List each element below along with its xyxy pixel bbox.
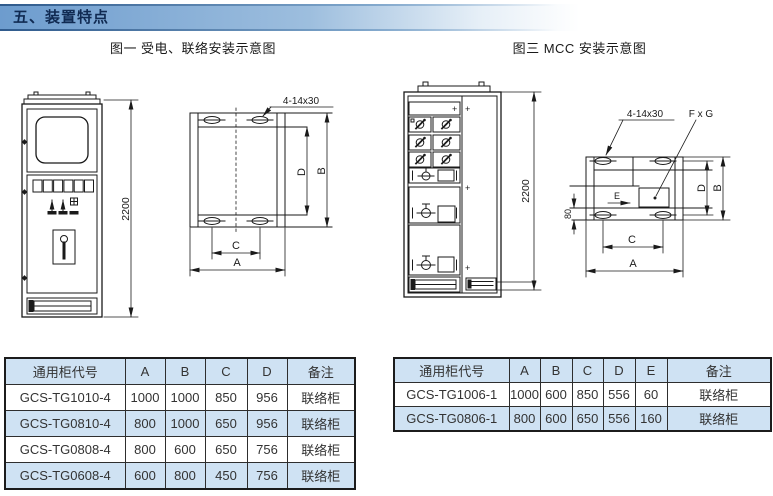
svg-text:80: 80 <box>563 209 573 219</box>
table-row: GCS-TG0806-1800600650556160联络柜 <box>394 407 771 432</box>
table-cell: 956 <box>247 385 287 411</box>
figure1-title: 图一 受电、联络安装示意图 <box>0 38 386 57</box>
table-cell: 650 <box>572 407 603 432</box>
table-cell: GCS-TG0608-4 <box>5 463 125 490</box>
column-header: D <box>603 358 635 383</box>
table-cell: 联络柜 <box>287 437 355 463</box>
dimension-offset-80: 80 <box>563 194 574 234</box>
dimension-d: D <box>683 161 713 215</box>
table-cell: GCS-TG0810-4 <box>5 411 125 437</box>
dimension-a: A <box>586 221 683 277</box>
figure3-diagram: + + + + 2200 <box>386 60 773 360</box>
cabinet-body <box>22 104 102 317</box>
table-cell: 联络柜 <box>287 411 355 437</box>
svg-text:A: A <box>233 257 241 269</box>
table-cell: 800 <box>125 437 165 463</box>
svg-text:B: B <box>712 184 724 191</box>
table-row: GCS-TG0808-4800600650756联络柜 <box>5 437 355 463</box>
table-cell: 1000 <box>125 385 165 411</box>
table-cell: 556 <box>603 383 635 407</box>
top-plate <box>418 86 490 92</box>
table-row: GCS-TG1006-1100060085055660联络柜 <box>394 383 771 407</box>
catalog-page: 五、装置特点 图一 受电、联络安装示意图 图三 MCC 安装示意图 <box>0 0 773 496</box>
table-cell: 450 <box>205 463 247 490</box>
switch-drawer <box>409 168 460 183</box>
header-row: 通用柜代号ABCD备注 <box>5 358 355 385</box>
table-cell: 联络柜 <box>287 463 355 490</box>
svg-text:A: A <box>629 258 637 270</box>
svg-text:E: E <box>614 191 620 201</box>
column-header: C <box>572 358 603 383</box>
figure3-title: 图三 MCC 安装示意图 <box>386 38 773 57</box>
figure1-diagram: 2200 <box>0 60 386 360</box>
table-row: GCS-TG0810-48001000650956联络柜 <box>5 411 355 437</box>
mounting-plan-view: 4-14x30 D B C A <box>190 96 333 276</box>
table-cell: 1000 <box>509 383 540 407</box>
table-cell: 160 <box>635 407 667 432</box>
table-cell: 1000 <box>165 385 205 411</box>
table-cell: 联络柜 <box>667 383 771 407</box>
opening-size-label: F x G <box>689 109 714 120</box>
svg-text:C: C <box>628 234 636 246</box>
table-cell: 850 <box>205 385 247 411</box>
table-cell: GCS-TG1006-1 <box>394 383 509 407</box>
table-cell: 800 <box>509 407 540 432</box>
column-header: 备注 <box>287 358 355 385</box>
table-cell: 800 <box>165 463 205 490</box>
table-cell: 600 <box>540 407 572 432</box>
cabinet-front-view <box>22 92 102 317</box>
ventilation-grille <box>27 298 97 314</box>
svg-text:D: D <box>696 184 708 192</box>
control-switch-icon <box>48 198 79 215</box>
svg-text:B: B <box>316 167 328 174</box>
table-row: GCS-TG0608-4600800450756联络柜 <box>5 463 355 490</box>
table-cell: 600 <box>125 463 165 490</box>
fig1-spec-table: 通用柜代号ABCD备注GCS-TG1010-410001000850956联络柜… <box>4 357 356 490</box>
plus-marks: + + + + <box>452 104 470 273</box>
column-header: 通用柜代号 <box>394 358 509 383</box>
table-cell: GCS-TG0808-4 <box>5 437 125 463</box>
table-cell: GCS-TG0806-1 <box>394 407 509 432</box>
table-cell: 650 <box>205 411 247 437</box>
drawer-unit-grid <box>409 117 460 167</box>
table-cell: 756 <box>247 437 287 463</box>
large-drawer <box>409 225 460 275</box>
table-cell: 800 <box>125 411 165 437</box>
cap-bolt <box>423 82 428 86</box>
dimension-height: 2200 <box>498 92 541 290</box>
height-dim-label: 2200 <box>120 197 132 221</box>
cap-bolt <box>479 82 484 86</box>
column-header: B <box>165 358 205 385</box>
entry-dimension: E <box>608 191 630 203</box>
slot-size-label: 4-14x30 <box>283 96 320 107</box>
svg-text:+: + <box>465 104 470 114</box>
table-cell: 600 <box>540 383 572 407</box>
mounting-plan-view: E 80 4-14x30 F x G <box>563 109 730 277</box>
table-cell: 1000 <box>165 411 205 437</box>
column-header: A <box>509 358 540 383</box>
rotary-switch-icon <box>416 119 452 164</box>
table-cell: 600 <box>165 437 205 463</box>
large-drawer <box>409 187 460 223</box>
column-header: 通用柜代号 <box>5 358 125 385</box>
dimension-d: D <box>296 127 308 215</box>
dimension-c: C <box>603 221 663 253</box>
top-plate <box>28 95 96 99</box>
cabinet-body <box>404 92 501 297</box>
fig3-spec-table: 通用柜代号ABCDE备注GCS-TG1006-1100060085055660联… <box>393 357 772 432</box>
column-header: A <box>125 358 165 385</box>
top-rim <box>24 99 100 104</box>
column-header: B <box>540 358 572 383</box>
height-dim-label: 2200 <box>520 179 532 203</box>
dimension-c: C <box>212 228 260 259</box>
header-row: 通用柜代号ABCDE备注 <box>394 358 771 383</box>
operating-handle-icon <box>53 230 75 264</box>
dimension-height: 2200 <box>104 100 138 317</box>
table-cell: 650 <box>205 437 247 463</box>
indicator-lights <box>33 180 94 192</box>
table-cell: GCS-TG1010-4 <box>5 385 125 411</box>
svg-text:C: C <box>232 240 240 252</box>
column-header: E <box>635 358 667 383</box>
column-header: D <box>247 358 287 385</box>
table-cell: 956 <box>247 411 287 437</box>
svg-text:+: + <box>465 183 470 193</box>
opening-size-callout: F x G <box>656 109 713 196</box>
table-cell: 联络柜 <box>667 407 771 432</box>
dimension-a: A <box>190 228 285 276</box>
slot-size-label: 4-14x30 <box>627 109 664 120</box>
svg-text:+: + <box>452 104 457 114</box>
page-title: 五、装置特点 <box>0 4 773 31</box>
section-header-band: 五、装置特点 <box>0 4 773 31</box>
table-cell: 556 <box>603 407 635 432</box>
table-cell: 联络柜 <box>287 385 355 411</box>
table-cell: 756 <box>247 463 287 490</box>
slot-size-callout: 4-14x30 <box>606 109 674 155</box>
svg-text:+: + <box>465 263 470 273</box>
table-row: GCS-TG1010-410001000850956联络柜 <box>5 385 355 411</box>
middle-door-panel <box>27 175 97 293</box>
viewing-window <box>36 117 88 163</box>
table-cell: 850 <box>572 383 603 407</box>
table-cell: 60 <box>635 383 667 407</box>
column-header: 备注 <box>667 358 771 383</box>
svg-text:D: D <box>296 168 308 176</box>
column-header: C <box>205 358 247 385</box>
dimension-b: B <box>316 113 328 227</box>
ventilation-grille <box>409 277 496 292</box>
